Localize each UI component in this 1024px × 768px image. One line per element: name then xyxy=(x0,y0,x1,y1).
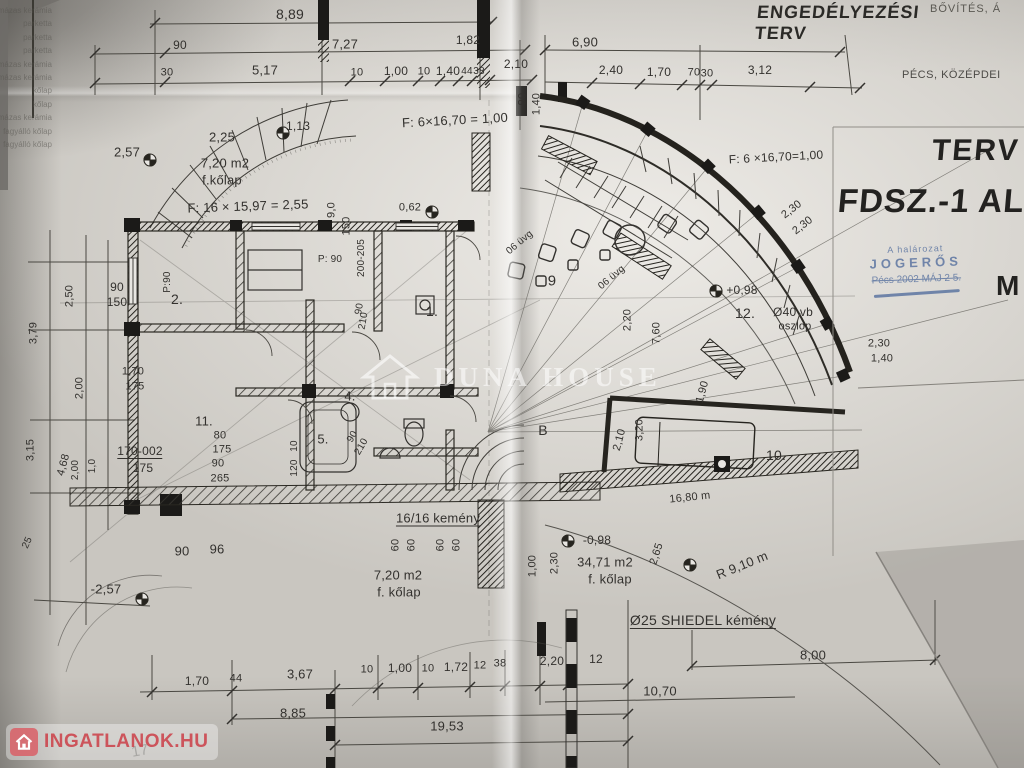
dim-label: 44 xyxy=(230,674,243,685)
margin-note: mázas kerámia xyxy=(0,6,52,15)
dim-label: 0,62 xyxy=(399,203,421,214)
margin-note: fagyálló kőlap xyxy=(3,127,52,136)
dim-label: 2,40 xyxy=(599,64,623,76)
dim-label: 1,40 xyxy=(436,65,460,77)
dim-label: 5,17 xyxy=(252,64,278,77)
dim-label: 265 xyxy=(211,474,230,485)
dim-label: 19,53 xyxy=(430,720,464,733)
dim-label: f. kőlap xyxy=(377,586,421,599)
dim-label: 1,82 xyxy=(456,34,480,46)
dim-label: 175 xyxy=(213,445,232,456)
dim-label: 60 xyxy=(452,539,463,552)
dim-label: 90 xyxy=(173,39,187,51)
dim-label: 1,70 xyxy=(185,675,209,687)
dim-label: 6,90 xyxy=(572,36,598,49)
dim-label: 8,00 xyxy=(800,649,826,662)
dim-label: 150 xyxy=(107,296,128,308)
margin-note: mázas kerámia xyxy=(0,73,52,82)
dim-label: 2,20 xyxy=(540,655,564,667)
dim-label: F: 16 × 15,97 = 2,55 xyxy=(187,197,308,214)
margin-note: mázas kerámia xyxy=(0,60,52,69)
dim-label: B xyxy=(538,423,548,437)
stamp-line3: Pécs 2002 MÁJ 2 5. xyxy=(856,272,976,287)
sheet-title-main: FDSZ.-1 ALA xyxy=(836,182,1024,220)
dim-label: 90 xyxy=(518,93,529,106)
dim-label: 2,20 xyxy=(623,309,634,331)
ingatlanok-watermark-text: INGATLANOK.HU xyxy=(44,731,208,753)
dim-label: P:90 xyxy=(163,271,173,292)
margin-note: parketta xyxy=(23,19,52,28)
stamp-line2: JOGERŐS xyxy=(856,253,976,272)
dim-label: 4. xyxy=(344,390,355,403)
dim-label: 1,00 xyxy=(528,555,539,577)
dim-label: 38 xyxy=(473,67,485,77)
dim-label: f.kőlap xyxy=(202,174,242,187)
dim-label: 175 xyxy=(133,462,154,474)
margin-note: fagyálló kőlap xyxy=(3,140,52,149)
dim-label: 170-002 xyxy=(117,445,162,459)
dim-label: 2,00 xyxy=(71,460,81,480)
dim-label: 2,50 xyxy=(65,285,76,307)
dim-label: 1,00 xyxy=(384,65,408,77)
dim-label: 3,20 xyxy=(635,419,646,441)
dim-label: 10 xyxy=(290,440,300,452)
floorplan-photo: mázas kerámiaparkettaparkettaparkettamáz… xyxy=(0,0,1024,768)
dim-label: 34,71 m2 xyxy=(577,556,633,569)
dim-label: 30 xyxy=(161,68,174,79)
dim-label: 10 xyxy=(361,665,374,676)
dim-label: 3,15 xyxy=(26,439,37,461)
dim-label: 3,67 xyxy=(287,668,313,681)
margin-note: mázas kerámia xyxy=(0,113,52,122)
dim-label: 70 xyxy=(688,68,701,79)
dim-label: 10,70 xyxy=(643,685,677,698)
dim-label: 60 xyxy=(436,539,447,552)
dim-label: 5. xyxy=(317,433,328,446)
dim-label: 12. xyxy=(735,306,755,320)
dim-label: P: 90 xyxy=(318,255,342,265)
dim-label: 1,40 xyxy=(871,354,893,365)
scale-letter: M xyxy=(996,270,1019,302)
dim-label: 7,20 m2 xyxy=(374,569,422,582)
dim-label: 200-205 xyxy=(357,239,367,277)
location-note: PÉCS, KÖZÉPDEI xyxy=(902,69,1001,81)
dim-label: 7,20 m2 xyxy=(201,157,249,170)
dim-label: 12 xyxy=(589,653,603,665)
dim-label: 44 xyxy=(461,67,473,77)
dim-label: 2,10 xyxy=(504,58,528,70)
floorplan-drawing xyxy=(0,0,1024,768)
top-right-note: BŐVÍTÉS, Á xyxy=(930,3,1001,15)
dim-label: 9,0 xyxy=(327,202,338,218)
dim-label: 1,72 xyxy=(444,661,468,673)
dim-label: 1,40 xyxy=(532,93,543,115)
dim-label: 90 xyxy=(110,281,124,293)
ingatlanok-watermark: INGATLANOK.HU xyxy=(6,724,218,760)
dim-label: -0,98 xyxy=(583,534,611,546)
dim-label: 2,57 xyxy=(114,146,140,159)
dim-label: 12 xyxy=(474,661,487,672)
dim-label: 8,85 xyxy=(280,707,306,720)
dim-label: 96 xyxy=(210,543,225,556)
margin-note: kőlap xyxy=(33,86,52,95)
dim-label: 30 xyxy=(701,69,714,80)
jogeros-stamp: A halározat JOGERŐS Pécs 2002 MÁJ 2 5. xyxy=(855,242,977,297)
dim-label: 11. xyxy=(195,415,213,428)
dim-label: 150 xyxy=(342,217,353,236)
dim-label: 10 xyxy=(351,68,364,79)
dim-label: Ø40 vb xyxy=(773,306,813,318)
dim-label: 16/16 kemény xyxy=(396,512,480,527)
dim-label: 38 xyxy=(494,659,507,670)
dim-label: 8,89 xyxy=(276,7,304,21)
margin-note: kőlap xyxy=(33,100,52,109)
dim-label: 7,27 xyxy=(332,38,358,51)
dim-label: 2,30 xyxy=(868,339,890,350)
dim-label: 7,60 xyxy=(652,322,663,344)
dim-label: 3,12 xyxy=(748,64,772,76)
dim-label: 9 xyxy=(548,274,557,289)
dim-label: 80 xyxy=(214,431,227,442)
dim-label: 2,00 xyxy=(75,377,86,399)
dim-label: 2,25 xyxy=(209,131,235,144)
dim-label: +0,98 xyxy=(726,284,757,296)
house-icon xyxy=(10,728,38,756)
dim-label: 10 xyxy=(418,67,431,78)
plan-type-title: ENGEDÉLYEZÉSI TERV xyxy=(754,2,921,43)
dim-label: 120 xyxy=(290,459,300,476)
dim-label: 1,70 xyxy=(122,367,144,378)
dim-label: 2,30 xyxy=(550,552,561,574)
margin-note: parketta xyxy=(23,33,52,42)
dim-label: 175 xyxy=(126,382,145,393)
dim-label: 90 xyxy=(175,545,190,558)
dim-label: 90 xyxy=(212,459,225,470)
margin-note: parketta xyxy=(23,46,52,55)
dim-label: Ø25 SHIEDEL kémény xyxy=(630,613,776,629)
dim-label: 2. xyxy=(171,292,183,306)
dim-label: oszlop xyxy=(779,322,812,333)
dim-label: 1,0 xyxy=(88,459,98,474)
margin-legend: mázas kerámiaparkettaparkettaparkettamáz… xyxy=(0,0,54,170)
dim-label: 1,00 xyxy=(388,662,412,674)
dim-label: -2,57 xyxy=(91,583,122,596)
dim-label: 1. xyxy=(426,304,438,318)
dim-label: f. kőlap xyxy=(588,573,632,586)
dim-label: 1,70 xyxy=(647,66,671,78)
sheet-title-terv: TERV xyxy=(931,134,1021,168)
dim-label: 60 xyxy=(407,539,418,552)
dim-label: 3,79 xyxy=(29,322,40,344)
dim-label: -1,13 xyxy=(282,120,310,132)
dim-label: 60 xyxy=(391,539,402,552)
dim-label: 10 xyxy=(422,664,435,675)
dim-label: 10. xyxy=(766,448,786,462)
